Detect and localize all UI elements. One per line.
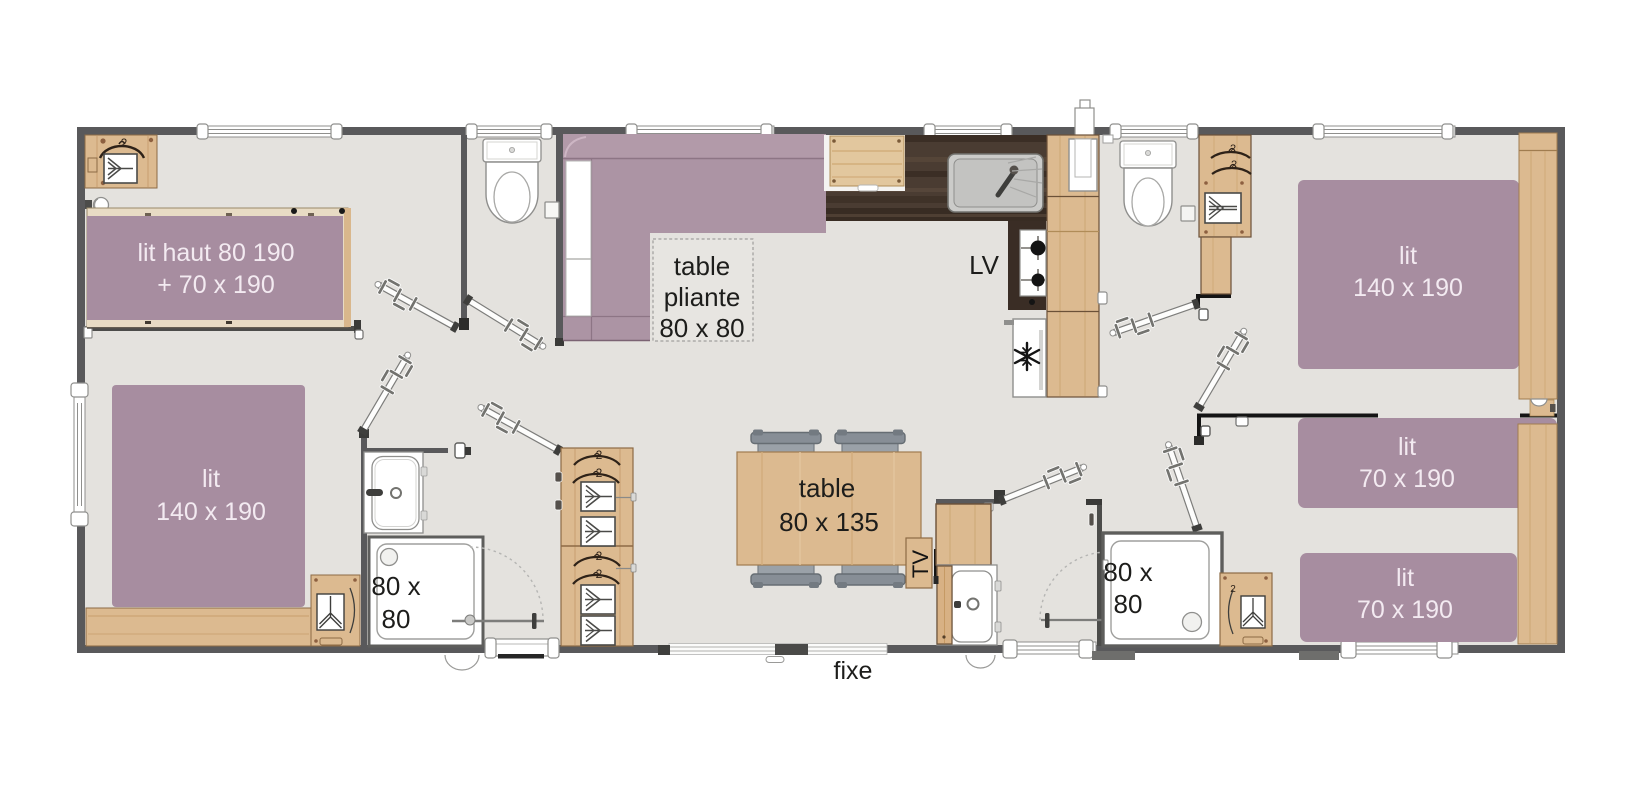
svg-text:LV: LV [969,250,1000,280]
svg-text:80 x: 80 x [1103,557,1152,587]
svg-text:lit: lit [1396,564,1414,592]
svg-text:2: 2 [1230,584,1236,595]
svg-text:2: 2 [596,466,603,480]
svg-text:140 x 190: 140 x 190 [1353,274,1463,302]
svg-text:lit: lit [202,465,220,493]
svg-text:table: table [799,473,855,503]
svg-text:2: 2 [1231,159,1237,171]
svg-text:80 x 80: 80 x 80 [659,313,744,343]
svg-text:80 x 135: 80 x 135 [779,507,879,537]
svg-text:TV: TV [908,550,933,578]
svg-text:70 x 190: 70 x 190 [1359,465,1455,493]
svg-text:80 x: 80 x [371,571,420,601]
svg-text:lit haut 80 190: lit haut 80 190 [137,239,294,267]
svg-text:2: 2 [596,448,603,462]
svg-text:2: 2 [121,136,128,150]
svg-text:2: 2 [1230,143,1236,155]
svg-text:table: table [674,251,730,281]
svg-text:fixe: fixe [834,657,873,685]
svg-text:pliante: pliante [664,282,741,312]
svg-text:80: 80 [382,604,411,634]
svg-text:+ 70 x 190: + 70 x 190 [157,271,274,299]
svg-text:2: 2 [596,567,603,581]
svg-text:70 x 190: 70 x 190 [1357,596,1453,624]
svg-text:lit: lit [1399,242,1417,270]
svg-text:140 x 190: 140 x 190 [156,498,266,526]
svg-text:2: 2 [596,549,603,563]
svg-text:lit: lit [1398,433,1416,461]
svg-text:80: 80 [1114,589,1143,619]
